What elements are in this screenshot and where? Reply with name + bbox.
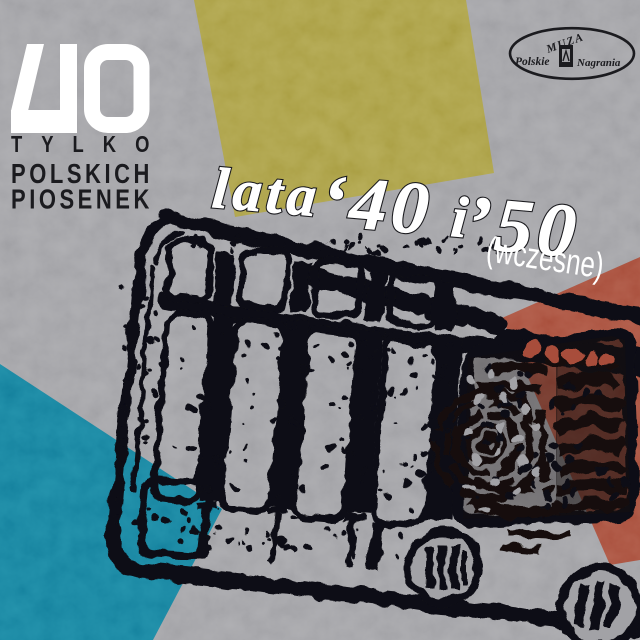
svg-text:Nagrania: Nagrania <box>576 57 621 69</box>
svg-text:PIOSENEK: PIOSENEK <box>11 184 149 215</box>
svg-text:Polskie: Polskie <box>515 56 550 68</box>
